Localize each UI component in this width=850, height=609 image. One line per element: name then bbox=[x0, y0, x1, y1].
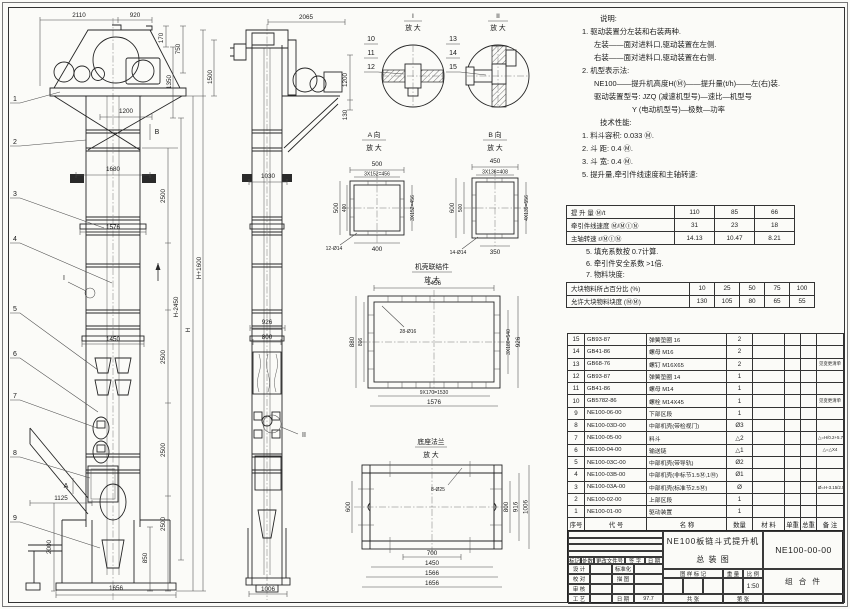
balloon-8: 8 bbox=[13, 450, 17, 457]
detail-ii-marker: II bbox=[302, 432, 306, 439]
balloon-6: 6 bbox=[13, 351, 17, 358]
table-row: 5NE100-03C-00中部机壳(带导轨)Ø2 bbox=[568, 456, 844, 468]
table-cell: 14.13 bbox=[675, 232, 715, 245]
table-cell bbox=[785, 444, 801, 456]
bracket-foot bbox=[26, 583, 40, 590]
table-cell: 大块物料所占百分比 (%) bbox=[567, 283, 690, 296]
table-cell bbox=[817, 506, 844, 518]
dim-1576: 1576 bbox=[427, 399, 442, 406]
holes-callout: 14-Ø14 bbox=[450, 250, 467, 256]
table-row: 大块物料所占百分比 (%)10255075100 bbox=[567, 283, 815, 296]
table-cell: 80 bbox=[740, 295, 765, 308]
performance-table: 提 升 量 Ⓜ/t1108566牵引件线速度 Ⓜ/ⓂⒾⓃ312318主轴转速 r… bbox=[566, 205, 795, 245]
boot-section bbox=[62, 520, 170, 583]
dim-1006: 1006 bbox=[523, 500, 530, 515]
view-b-marker: B bbox=[155, 129, 160, 136]
table-cell: 输送链 bbox=[647, 444, 727, 456]
table-cell: Ø=H-3.15/2.5 bbox=[817, 481, 844, 493]
table-cell bbox=[753, 481, 785, 493]
table-cell: 螺钉 M16X65 bbox=[647, 358, 727, 370]
table-cell: Ø1 bbox=[727, 469, 753, 481]
scale-header: 比 例 bbox=[743, 569, 763, 578]
dim-h+1600: H+1600 bbox=[196, 256, 203, 279]
table-cell bbox=[753, 346, 785, 358]
note-line: NE100——提升机高度H(Ⓜ)——提升量(t/h)——左(右)装. bbox=[570, 77, 846, 90]
table-cell bbox=[753, 370, 785, 382]
date-label: 日 期 bbox=[612, 594, 634, 604]
table-cell bbox=[753, 506, 785, 518]
drawing-sheet: 2110 920 170 750 1350 1200 1680 1576 145… bbox=[0, 0, 850, 609]
holes-callout: 12-Ø14 bbox=[326, 246, 343, 252]
table-cell: 备 注 bbox=[817, 518, 844, 530]
table-cell: 55 bbox=[790, 295, 815, 308]
view-a-detail: A 向 放 大 500 3X152=456 500 400 3X152=456 … bbox=[326, 130, 416, 253]
table-cell: 中部机壳(非标节1.5Ⓜ,1Ⓜ) bbox=[647, 469, 727, 481]
dim-3x152-v: 3X152=456 bbox=[410, 195, 416, 221]
balloon-5: 5 bbox=[13, 306, 17, 313]
table-cell: 下部区段 bbox=[647, 407, 727, 419]
design-label: 设 计 bbox=[568, 564, 590, 574]
table-cell bbox=[801, 395, 817, 407]
table-cell bbox=[753, 420, 785, 432]
table-cell bbox=[801, 432, 817, 444]
table-cell bbox=[753, 334, 785, 346]
table-cell: 主轴转速 r/ⓂⒾⓃ bbox=[567, 232, 675, 245]
centerlines bbox=[360, 290, 508, 394]
dim-2500: 2500 bbox=[160, 350, 167, 365]
table-cell bbox=[753, 358, 785, 370]
dim-3x152: 3X152=456 bbox=[364, 172, 390, 178]
table-cell: 50 bbox=[740, 283, 765, 296]
table-cell bbox=[753, 469, 785, 481]
dim-2065: 2065 bbox=[299, 14, 314, 21]
balloon-13: 13 bbox=[449, 36, 457, 43]
balloon-14: 14 bbox=[449, 50, 457, 57]
takeup-bolt bbox=[254, 430, 262, 438]
table-cell: 10.47 bbox=[715, 232, 755, 245]
drawing-title-line1: NE100板链斗式提升机 bbox=[663, 531, 763, 550]
table-cell: 11 bbox=[568, 383, 585, 395]
dim-916: 916 bbox=[513, 501, 520, 512]
table-cell: 螺母 M14 bbox=[647, 383, 727, 395]
table-cell: 1 bbox=[727, 370, 753, 382]
rev-header-date: 日 期 bbox=[645, 557, 663, 564]
note-line: 左装——面对进料口,驱动装置在左侧. bbox=[570, 38, 846, 51]
wall-gap bbox=[492, 64, 506, 84]
table-cell: 8.21 bbox=[755, 232, 795, 245]
process-label: 工 艺 bbox=[568, 594, 590, 604]
detail-i-marker: I bbox=[63, 275, 65, 282]
support-lug bbox=[242, 174, 252, 182]
table-cell: 牵引件线速度 Ⓜ/ⓂⒾⓃ bbox=[567, 219, 675, 232]
table-cell bbox=[801, 383, 817, 395]
base-flange-detail: 底座法兰 放 大 8-Ø25 600 800 916 1006 700 1450… bbox=[345, 437, 530, 587]
table-cell: 允许大块物料块度 (ⓂⓂ) bbox=[567, 295, 690, 308]
table-cell: 总重 bbox=[801, 518, 817, 530]
casing-flange-detail: 机壳联结件 放 大 1456 28-Ø16 880 806 3X180=540 … bbox=[349, 262, 522, 406]
dim-800: 800 bbox=[262, 334, 273, 341]
dim-1006: 1006 bbox=[261, 586, 276, 593]
table-cell bbox=[817, 493, 844, 505]
table-cell: Ø bbox=[727, 481, 753, 493]
table-cell bbox=[801, 358, 817, 370]
dim-1576: 1576 bbox=[106, 224, 121, 231]
centerlines bbox=[464, 170, 526, 246]
table-cell bbox=[801, 506, 817, 518]
date-value: 97.7 bbox=[634, 594, 663, 604]
table-cell bbox=[801, 370, 817, 382]
rev-header-sign: 签 字 bbox=[625, 557, 645, 564]
dim-400: 400 bbox=[372, 246, 383, 253]
dim-350: 350 bbox=[490, 249, 501, 256]
table-row: 允许大块物料块度 (ⓂⓂ)130105806555 bbox=[567, 295, 815, 308]
table-cell: 数量 bbox=[727, 518, 753, 530]
check-sign bbox=[590, 574, 612, 584]
side-view: 2065 1500 1200 130 1030 926 800 1006 II bbox=[207, 14, 353, 600]
balloon-leaders bbox=[10, 92, 150, 548]
standardize-label: 标准化 bbox=[612, 564, 634, 574]
table-cell bbox=[785, 420, 801, 432]
mark-box bbox=[663, 578, 683, 594]
table-cell: Ø3 bbox=[727, 420, 753, 432]
table-cell bbox=[785, 370, 801, 382]
dim-1200-side: 1200 bbox=[342, 73, 349, 88]
dim-lines bbox=[352, 465, 529, 587]
detail-ii-subtitle: 放 大 bbox=[490, 23, 506, 32]
view-a-marker: A bbox=[64, 483, 69, 490]
mark-box bbox=[683, 578, 703, 594]
table-cell: 螺栓 M14X45 bbox=[647, 395, 727, 407]
takeup-bracket bbox=[28, 545, 62, 583]
lump-size-table-body: 大块物料所占百分比 (%)10255075100允许大块物料块度 (ⓂⓂ)130… bbox=[567, 283, 815, 308]
balloon-1: 1 bbox=[13, 96, 17, 103]
reducer-gear bbox=[54, 62, 74, 82]
tech-heading: 技术性能: bbox=[570, 116, 846, 129]
table-cell: 12 bbox=[568, 370, 585, 382]
dim-600: 600 bbox=[345, 501, 352, 512]
table-cell: GB68-76 bbox=[585, 358, 647, 370]
dim-2500: 2500 bbox=[160, 189, 167, 204]
performance-table-body: 提 升 量 Ⓜ/t1108566牵引件线速度 Ⓜ/ⓂⒾⓃ312318主轴转速 r… bbox=[567, 206, 795, 245]
table-cell bbox=[817, 456, 844, 468]
table-cell: NE100-05-00 bbox=[585, 432, 647, 444]
direction-arrow bbox=[156, 263, 161, 281]
table-row: 4NE100-03B-00中部机壳(非标节1.5Ⓜ,1Ⓜ)Ø1 bbox=[568, 469, 844, 481]
dim-1200: 1200 bbox=[119, 108, 134, 115]
blank-cell bbox=[634, 584, 663, 594]
table-cell: NE100-02-00 bbox=[585, 493, 647, 505]
tech-line: 1. 料斗容积: 0.033 Ⓜ. bbox=[570, 129, 846, 142]
dim-500-v: 500 bbox=[333, 202, 340, 213]
table-cell: 65 bbox=[765, 295, 790, 308]
detail-ii-title: II bbox=[496, 13, 500, 20]
table-cell bbox=[753, 444, 785, 456]
table-cell: NE100-03A-00 bbox=[585, 481, 647, 493]
table-cell: 8 bbox=[568, 420, 585, 432]
table-cell: 9 bbox=[568, 407, 585, 419]
dim-head-overhang: 920 bbox=[130, 12, 141, 19]
support-lug bbox=[70, 174, 84, 183]
motor bbox=[126, 58, 160, 84]
table-cell: 13 bbox=[568, 358, 585, 370]
hatched-wall bbox=[492, 84, 506, 107]
dim-400-v: 400 bbox=[342, 204, 348, 213]
dim-1350: 1350 bbox=[166, 75, 173, 90]
dim-500-v: 500 bbox=[458, 204, 464, 213]
note-line: 5. 填充系数按 0.7计算. bbox=[586, 246, 664, 258]
table-cell bbox=[801, 334, 817, 346]
dim-1500: 1500 bbox=[207, 70, 214, 85]
table-cell: 驱动装置 bbox=[647, 506, 727, 518]
weight-box bbox=[723, 578, 743, 594]
table-cell: 6 bbox=[568, 444, 585, 456]
table-cell bbox=[801, 444, 817, 456]
drawing-title-line2: 总 装 图 bbox=[663, 550, 763, 569]
table-cell: 代 号 bbox=[585, 518, 647, 530]
bracket bbox=[506, 50, 516, 66]
weight-header: 重 量 bbox=[723, 569, 743, 578]
table-cell: 2 bbox=[568, 493, 585, 505]
dim-h-2450: H-2450 bbox=[173, 296, 180, 317]
check-label: 校 对 bbox=[568, 574, 590, 584]
detail-i: I 放 大 10 11 12 bbox=[364, 13, 444, 107]
scale-value: 1:50 bbox=[743, 578, 763, 594]
table-row: 7NE100-05-00料斗△2△=H/0.2+5.75 bbox=[568, 432, 844, 444]
table-cell bbox=[817, 334, 844, 346]
table-cell: △=H/0.2+5.75 bbox=[817, 432, 844, 444]
sheet-total: 共 张 bbox=[663, 594, 723, 604]
table-cell bbox=[785, 383, 801, 395]
dim-1680: 1680 bbox=[106, 166, 121, 173]
table-cell: 100 bbox=[790, 283, 815, 296]
table-cell: 中部机壳(带检视门) bbox=[647, 420, 727, 432]
dim-1125: 1125 bbox=[54, 495, 68, 502]
part-classification: 组 合 件 bbox=[763, 569, 844, 594]
table-cell: NE100-03D-00 bbox=[585, 420, 647, 432]
table-row: 14GB41-86螺母 M162 bbox=[568, 346, 844, 358]
table-cell: 中部机壳(标准节2.5Ⓜ) bbox=[647, 481, 727, 493]
table-cell: Ø2 bbox=[727, 456, 753, 468]
mark-box bbox=[703, 578, 723, 594]
table-cell: 15 bbox=[568, 334, 585, 346]
view-b-detail: B 向 放 大 450 3X136=408 600 500 4X139=556 … bbox=[449, 130, 530, 256]
trace-sign bbox=[634, 574, 663, 584]
table-cell bbox=[817, 383, 844, 395]
note-line: 驱动装置型号: JZQ (减速机型号)—速比—机型号 bbox=[570, 90, 846, 103]
table-cell: 14 bbox=[568, 346, 585, 358]
table-cell bbox=[753, 432, 785, 444]
table-cell: GB5782-86 bbox=[585, 395, 647, 407]
balloon-3: 3 bbox=[13, 191, 17, 198]
table-cell bbox=[785, 395, 801, 407]
base-title: 底座法兰 bbox=[417, 437, 444, 446]
table-cell: 23 bbox=[715, 219, 755, 232]
table-cell bbox=[785, 346, 801, 358]
dim-750: 750 bbox=[175, 43, 182, 54]
parts-list-body: 15GB93-87弹簧垫圈 16214GB41-86螺母 M16213GB68-… bbox=[568, 334, 844, 531]
table-row: 序号代 号名 称数量材 料单重总重备 注 bbox=[568, 518, 844, 530]
table-cell: 1 bbox=[727, 407, 753, 419]
dim-1450: 1450 bbox=[106, 336, 121, 343]
table-row: 提 升 量 Ⓜ/t1108566 bbox=[567, 206, 795, 219]
roller-bracket bbox=[97, 421, 105, 428]
tech-line: 3. 斗 宽: 0.4 Ⓜ. bbox=[570, 155, 846, 168]
table-cell: 10 bbox=[690, 283, 715, 296]
table-cell: 10 bbox=[568, 395, 585, 407]
table-cell bbox=[817, 407, 844, 419]
table-cell: 2 bbox=[727, 358, 753, 370]
table-cell: NE100-06-00 bbox=[585, 407, 647, 419]
roller-bracket bbox=[97, 445, 105, 452]
balloon-9: 9 bbox=[13, 515, 17, 522]
drive-side bbox=[293, 68, 317, 92]
takeup-bolt bbox=[272, 430, 280, 438]
standardize-sign bbox=[634, 564, 663, 574]
dim-500: 500 bbox=[372, 161, 383, 168]
table-row: 10GB5782-86螺栓 M14X451见变更清单 bbox=[568, 395, 844, 407]
audit-label: 审 核 bbox=[568, 584, 590, 594]
table-cell: GB93-87 bbox=[585, 334, 647, 346]
table-cell: △1 bbox=[727, 444, 753, 456]
table-row: 3NE100-03A-00中部机壳(标准节2.5Ⓜ)ØØ=H-3.15/2.5 bbox=[568, 481, 844, 493]
rev-header-docno: 更改文件号 bbox=[594, 557, 625, 564]
table-row: 1NE100-01-00驱动装置1 bbox=[568, 506, 844, 518]
balloon-10: 10 bbox=[367, 36, 375, 43]
reducer-gear bbox=[74, 66, 90, 82]
table-row: 9NE100-06-00下部区段1 bbox=[568, 407, 844, 419]
tech-line: 5. 提升量,牵引件线速度和主轴转速: bbox=[570, 168, 846, 181]
table-cell: GB41-86 bbox=[585, 383, 647, 395]
dim-2000: 2000 bbox=[46, 540, 53, 555]
table-cell: 1 bbox=[727, 493, 753, 505]
note-line: 右装——面对进料口,驱动装置在右侧. bbox=[570, 51, 846, 64]
rev-header-mark: 标记 bbox=[568, 557, 581, 564]
table-cell bbox=[785, 432, 801, 444]
table-cell: 1 bbox=[727, 383, 753, 395]
motor-fan bbox=[132, 60, 154, 82]
view-b-subtitle: 放 大 bbox=[487, 143, 503, 152]
balloon-7: 7 bbox=[13, 393, 17, 400]
title-block: 标记 处数 更改文件号 签 字 日 期 设 计 标准化 校 对 描 图 审 核 … bbox=[567, 530, 843, 603]
balloon-4: 4 bbox=[13, 236, 17, 243]
table-cell: NE100-01-00 bbox=[585, 506, 647, 518]
table-cell bbox=[801, 493, 817, 505]
dim-2500: 2500 bbox=[160, 517, 167, 532]
dim-1450: 1450 bbox=[425, 560, 440, 567]
holes-callout: 8-Ø25 bbox=[431, 487, 445, 493]
note-line: 2. 机型表示法: bbox=[570, 64, 846, 77]
dim-1566: 1566 bbox=[425, 570, 440, 577]
table-cell: 4 bbox=[568, 469, 585, 481]
table-row: 主轴转速 r/ⓂⒾⓃ14.1310.478.21 bbox=[567, 232, 795, 245]
table-cell bbox=[785, 469, 801, 481]
table-cell: 75 bbox=[765, 283, 790, 296]
detail-i-subtitle: 放 大 bbox=[405, 23, 421, 32]
notes-heading: 说明: bbox=[570, 12, 846, 25]
flange-title: 机壳联结件 bbox=[415, 262, 449, 271]
table-cell: 料斗 bbox=[647, 432, 727, 444]
dim-h: H bbox=[185, 327, 192, 332]
table-cell: 5 bbox=[568, 456, 585, 468]
table-cell bbox=[753, 383, 785, 395]
process-sign bbox=[590, 594, 612, 604]
table-row: 2NE100-02-00上部区段1 bbox=[568, 493, 844, 505]
dim-170: 170 bbox=[158, 32, 165, 43]
notes2-block: 5. 填充系数按 0.7计算. 6. 牵引件安全系数 >1倍. 7. 物料块度: bbox=[586, 246, 664, 281]
table-cell bbox=[785, 334, 801, 346]
balloon-15: 15 bbox=[449, 64, 457, 71]
lump-size-table: 大块物料所占百分比 (%)10255075100允许大块物料块度 (ⓂⓂ)130… bbox=[566, 282, 815, 308]
table-cell bbox=[785, 456, 801, 468]
table-cell: 弹簧垫圈 14 bbox=[647, 370, 727, 382]
mark-header: 图 样 标 记 bbox=[663, 569, 723, 578]
head-wheel bbox=[93, 37, 139, 83]
view-b-title: B 向 bbox=[488, 130, 501, 139]
table-cell: NE100-03C-00 bbox=[585, 456, 647, 468]
dim-926: 926 bbox=[515, 336, 522, 347]
table-cell: 25 bbox=[715, 283, 740, 296]
table-cell bbox=[801, 481, 817, 493]
table-row: 12GB93-87弹簧垫圈 141 bbox=[568, 370, 844, 382]
table-cell: 2 bbox=[727, 346, 753, 358]
table-cell bbox=[801, 456, 817, 468]
table-cell bbox=[817, 346, 844, 358]
table-cell: 单重 bbox=[785, 518, 801, 530]
design-sign bbox=[590, 564, 612, 574]
table-cell bbox=[785, 493, 801, 505]
guide-rails bbox=[258, 354, 278, 392]
dim-1456: 1456 bbox=[427, 280, 442, 287]
elevator-drawing: 2110 920 170 750 1350 1200 1680 1576 145… bbox=[0, 0, 562, 609]
dim-806: 806 bbox=[358, 338, 364, 347]
hatched-wall bbox=[492, 46, 506, 64]
table-cell: 上部区段 bbox=[647, 493, 727, 505]
table-cell: 85 bbox=[715, 206, 755, 219]
view-a-subtitle: 放 大 bbox=[366, 143, 382, 152]
table-cell bbox=[817, 469, 844, 481]
table-cell: 1 bbox=[568, 506, 585, 518]
dim-9x170: 9X170=1530 bbox=[420, 390, 449, 396]
table-cell: 2 bbox=[727, 334, 753, 346]
trace-label: 描 图 bbox=[612, 574, 634, 584]
table-cell: 31 bbox=[675, 219, 715, 232]
front-view: 2110 920 170 750 1350 1200 1680 1576 145… bbox=[10, 12, 206, 600]
table-row: 6NE100-04-00输送链△1△=△X4 bbox=[568, 444, 844, 456]
note-line: 7. 物料块度: bbox=[586, 269, 664, 281]
takeup-bolt bbox=[254, 412, 262, 420]
dim-130: 130 bbox=[342, 109, 349, 120]
table-cell bbox=[753, 395, 785, 407]
table-cell: 见变更清单 bbox=[817, 395, 844, 407]
table-cell bbox=[801, 407, 817, 419]
table-cell: 螺母 M16 bbox=[647, 346, 727, 358]
dim-800: 800 bbox=[503, 501, 510, 512]
dim-700: 700 bbox=[427, 550, 438, 557]
table-cell bbox=[785, 407, 801, 419]
dim-1030: 1030 bbox=[261, 173, 276, 180]
table-cell: NE100-04-00 bbox=[585, 444, 647, 456]
dim-2500: 2500 bbox=[160, 443, 167, 458]
notes-block: 说明: 1. 驱动装置分左装和右装两种. 左装——面对进料口,驱动装置在左侧. … bbox=[570, 12, 846, 181]
table-cell bbox=[817, 420, 844, 432]
base-subtitle: 放 大 bbox=[423, 450, 439, 459]
drawing-number: NE100-00-00 bbox=[763, 531, 844, 569]
detail-i-marker-circle bbox=[85, 288, 95, 298]
audit-sign bbox=[590, 584, 612, 594]
dim-1656: 1656 bbox=[109, 585, 124, 592]
note-line: Y (电动机型号)—极数—功率 bbox=[570, 103, 846, 116]
parts-list-table: 15GB93-87弹簧垫圈 16214GB41-86螺母 M16213GB68-… bbox=[567, 333, 844, 531]
